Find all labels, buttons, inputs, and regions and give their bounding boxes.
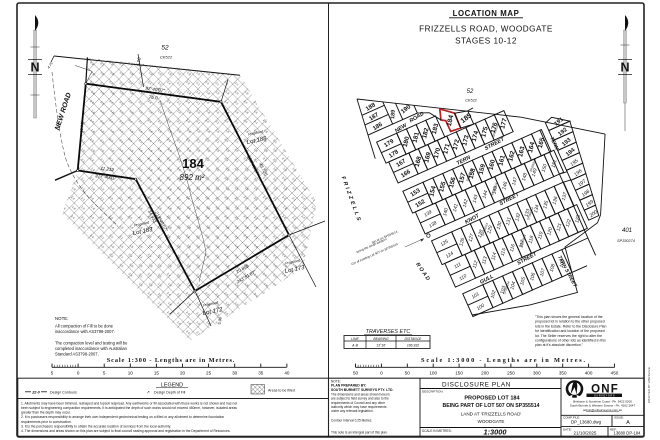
svg-text:450: 450: [611, 371, 619, 376]
svg-text:"This plan shows the general l: "This plan shows the general location of…: [535, 315, 603, 319]
svg-text:This note is an intergral part: This note is an intergral part of this p…: [331, 431, 388, 435]
svg-text:50: 50: [405, 371, 411, 376]
svg-text:S U R V E Y O R S: S U R V E Y O R S: [594, 394, 615, 397]
svg-text:WOODGATE: WOODGATE: [478, 419, 505, 424]
svg-text:4. The dimensions and areas sh: 4. The dimensions and areas shown on thi…: [21, 429, 230, 433]
svg-text:SOUTH BURNETT SURVEYS PTY. LTD: SOUTH BURNETT SURVEYS PTY. LTD.: [331, 388, 393, 392]
svg-text:proposed lot in relation to th: proposed lot in relation to the other pr…: [535, 320, 605, 324]
svg-text:52: 52: [467, 89, 474, 95]
svg-text:for identification and locatio: for identification and location of the p…: [535, 329, 605, 333]
svg-text:Scale 1:300 - Lengths are in: Scale 1:300 - Lengths are in Metres.: [107, 357, 236, 364]
svg-text:DESCRIPTION:: DESCRIPTION:: [422, 389, 444, 393]
svg-text:N: N: [30, 61, 39, 75]
svg-text:15: 15: [154, 371, 160, 376]
svg-text:PLAN PREPARED BY:: PLAN PREPARED BY:: [331, 384, 366, 388]
svg-text:189: 189: [390, 110, 397, 119]
svg-text:52: 52: [161, 45, 169, 52]
svg-text:30: 30: [232, 371, 238, 376]
svg-text:DISTANCE: DISTANCE: [405, 337, 423, 341]
svg-text:Design Depth of Fill: Design Depth of Fill: [154, 390, 186, 394]
svg-text:0: 0: [77, 371, 80, 376]
svg-text:13680 DP-184: 13680 DP-184: [613, 430, 641, 435]
svg-text:350: 350: [559, 371, 567, 376]
svg-text:FRIZZELLS ROAD, WOODGATE: FRIZZELLS ROAD, WOODGATE: [419, 25, 553, 34]
svg-text:The compaction level and testi: The compaction level and testing will be: [55, 341, 128, 346]
svg-text:Contour Interval 0.25 Metres.: Contour Interval 0.25 Metres.: [331, 419, 372, 423]
svg-text:892 m²: 892 m²: [180, 173, 205, 182]
svg-text:400: 400: [585, 371, 593, 376]
svg-text:BEARING: BEARING: [373, 337, 389, 341]
svg-text:5: 5: [51, 371, 54, 376]
svg-text:SCALE IN METRES:: SCALE IN METRES:: [422, 429, 452, 433]
svg-text:100: 100: [429, 371, 437, 376]
svg-text:DISCLOSURE PLAN: DISCLOSURE PLAN: [442, 382, 511, 389]
svg-text:186.932: 186.932: [407, 343, 419, 347]
svg-text:STAGES 10-12: STAGES 10-12: [455, 37, 517, 46]
svg-text:200: 200: [481, 371, 489, 376]
svg-text:been subject to engineering co: been subject to engineering compaction r…: [21, 406, 237, 410]
svg-text:21/10/2025: 21/10/2025: [574, 430, 597, 435]
svg-text:A: A: [626, 420, 630, 426]
svg-text:N: N: [620, 61, 629, 75]
svg-text:401: 401: [622, 228, 632, 234]
svg-text:250: 250: [507, 371, 515, 376]
svg-text:inaccordance with AS3798-2007.: inaccordance with AS3798-2007.: [55, 329, 115, 334]
svg-text:22·0: 22·0: [31, 390, 40, 394]
svg-text:DATE:: DATE:: [563, 428, 572, 432]
svg-text:Standard AS3798-2007.: Standard AS3798-2007.: [55, 352, 99, 357]
svg-text:LINE: LINE: [351, 337, 359, 341]
svg-text:50: 50: [353, 371, 359, 376]
svg-text:↗: ↗: [146, 390, 149, 395]
svg-text:Scale 1:3000 - Lengths are i: Scale 1:3000 - Lengths are in Metres.: [421, 357, 587, 364]
svg-text:35: 35: [258, 371, 264, 376]
svg-text:LOCATION MAP: LOCATION MAP: [453, 9, 520, 18]
svg-text:lots in the Estate. Refer to t: lots in the Estate. Refer to the Disclos…: [535, 324, 606, 328]
svg-text:configurations of other lots a: configurations of other lots as identifi…: [535, 339, 606, 343]
svg-text:150: 150: [455, 371, 463, 376]
svg-text:13°16': 13°16': [376, 343, 386, 347]
svg-text:SP330274: SP330274: [617, 239, 635, 243]
svg-text:Areas to be filled: Areas to be filled: [268, 389, 295, 393]
svg-text:requirements prior to construc: requirements prior to construction.: [21, 420, 72, 424]
svg-text:40: 40: [284, 371, 290, 376]
svg-text:A-B: A-B: [351, 343, 358, 347]
svg-text:10: 10: [128, 371, 134, 376]
svg-text:All compaction of Fill to be d: All compaction of Fill to be done: [55, 324, 114, 329]
svg-text:20: 20: [180, 371, 186, 376]
svg-text:lot. The Seller reserves the r: lot. The Seller reserves the right to al…: [535, 334, 602, 338]
svg-text:3. It is the purchasers respon: 3. It is the purchasers responsibility t…: [21, 425, 171, 429]
svg-text:BEING PART OF LOT 507 ON SP355: BEING PART OF LOT 507 ON SP355514: [442, 403, 539, 409]
svg-text:DRAFTED BY: MMcKenzie: DRAFTED BY: MMcKenzie: [647, 367, 651, 404]
svg-text:admin@onfsurveyors.com.au: admin@onfsurveyors.com.au: [583, 408, 622, 412]
svg-text:greater than the depth may occ: greater than the depth may occur.: [21, 411, 71, 415]
svg-text:Design Contours: Design Contours: [50, 390, 77, 394]
svg-text:5: 5: [103, 371, 106, 376]
svg-text:CK522: CK522: [465, 99, 477, 103]
svg-text:1. Allotments may have been tr: 1. Allotments may have been trimmed, res…: [21, 401, 237, 405]
svg-text:PROPOSED LOT 184: PROPOSED LOT 184: [464, 396, 520, 402]
svg-text:CK522: CK522: [160, 55, 173, 60]
svg-text:DP_13680.dwg: DP_13680.dwg: [571, 419, 602, 424]
svg-text:completed inaccordance with Au: completed inaccordance with Australian: [55, 346, 128, 351]
svg-text:1:3000: 1:3000: [483, 427, 507, 436]
svg-text:plan at it's absolute discreti: plan at it's absolute discretion.": [535, 343, 584, 347]
svg-text:NOTE:: NOTE:: [55, 316, 68, 321]
svg-text:25: 25: [206, 371, 212, 376]
svg-text:under any relevant legislation: under any relevant legislation.: [331, 409, 373, 413]
svg-text:184: 184: [182, 156, 204, 171]
svg-text:LAND AT 'FRIZZELLS ROAD': LAND AT 'FRIZZELLS ROAD': [461, 412, 522, 417]
svg-text:0: 0: [380, 371, 383, 376]
svg-text:2. It is purchasers responsibi: 2. It is purchasers responsibility to ar…: [21, 415, 224, 419]
svg-text:ISSUE:: ISSUE:: [614, 416, 624, 420]
svg-text:300: 300: [533, 371, 541, 376]
svg-text:18.641: 18.641: [80, 121, 85, 133]
